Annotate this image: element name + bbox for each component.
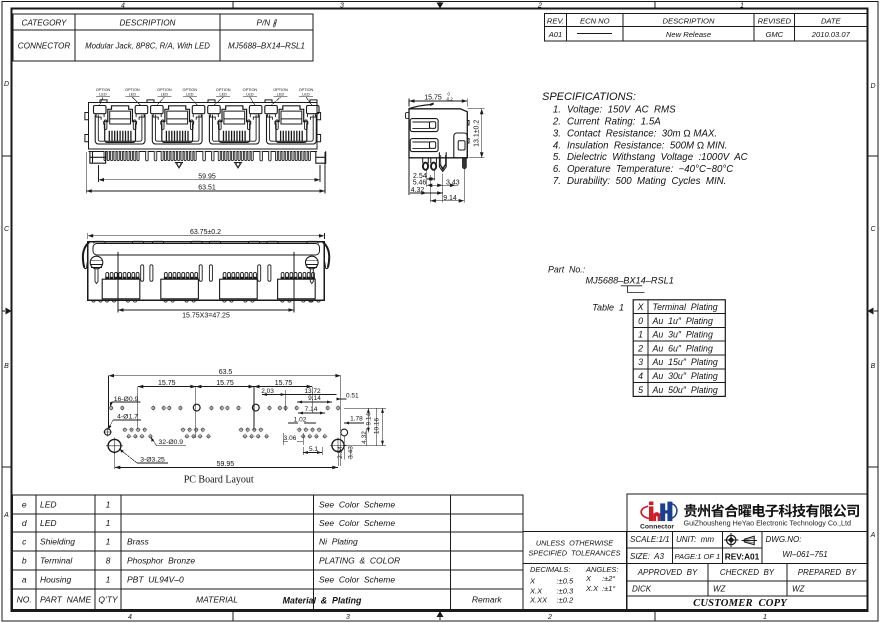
svg-text:1.02: 1.02 — [294, 417, 307, 424]
svg-text:1: 1 — [763, 614, 767, 621]
svg-text:OPTION: OPTION — [96, 88, 111, 92]
svg-text:2.: 2. — [552, 117, 561, 128]
svg-text:9.14: 9.14 — [308, 395, 321, 402]
svg-text:LED: LED — [277, 93, 285, 97]
svg-text:7.14: 7.14 — [305, 406, 318, 413]
svg-text:D: D — [870, 83, 875, 90]
svg-text:1: 1 — [638, 330, 643, 340]
svg-text::±0.2: :±0.2 — [557, 596, 574, 605]
svg-text:OPTION: OPTION — [125, 88, 140, 92]
svg-text:ECN NO: ECN NO — [580, 16, 610, 25]
svg-text:LED: LED — [161, 93, 169, 97]
svg-text:Durability: 500 Mating Cycl: Durability: 500 Mating Cycles MIN. — [567, 176, 726, 187]
svg-text:LED: LED — [99, 93, 107, 97]
svg-text:4.: 4. — [553, 140, 561, 151]
svg-text:PART NAME: PART NAME — [40, 594, 91, 604]
svg-text:Terminal: Terminal — [40, 556, 73, 566]
svg-text:5.1: 5.1 — [309, 446, 318, 453]
svg-text:X.XX: X.XX — [529, 596, 548, 605]
svg-text:D: D — [4, 81, 9, 88]
svg-text:OPTION: OPTION — [299, 88, 314, 92]
svg-text:Ni Plating: Ni Plating — [319, 537, 358, 547]
svg-text:WI–061–751: WI–061–751 — [782, 550, 827, 559]
svg-text:LED: LED — [220, 93, 228, 97]
svg-text:63.5: 63.5 — [219, 369, 233, 376]
svg-text:SPECIFICATIONS:: SPECIFICATIONS: — [542, 91, 636, 103]
svg-text:WZ: WZ — [792, 585, 806, 594]
svg-text:Terminal Plating: Terminal Plating — [653, 302, 718, 312]
svg-text:PLATING & COLOR: PLATING & COLOR — [319, 556, 400, 566]
svg-text:LED: LED — [246, 93, 254, 97]
svg-text:1.78: 1.78 — [350, 416, 363, 423]
svg-text:LED: LED — [302, 93, 310, 97]
svg-text:OPTION: OPTION — [243, 88, 258, 92]
svg-text:Au 3u″ Plating: Au 3u″ Plating — [652, 330, 713, 340]
svg-text:Remark: Remark — [472, 594, 503, 604]
svg-text:4.32: 4.32 — [411, 187, 425, 194]
svg-text:59.95: 59.95 — [217, 461, 235, 468]
svg-text:SPECIFIED TOLERANCES: SPECIFIED TOLERANCES — [529, 548, 621, 557]
svg-text:13.1±0.2: 13.1±0.2 — [474, 120, 481, 147]
svg-text:1: 1 — [106, 500, 111, 510]
svg-text:0: 0 — [638, 316, 643, 326]
svg-text:d: d — [22, 518, 27, 528]
svg-text:Table 1: Table 1 — [592, 302, 624, 312]
svg-text::±2°: :±2° — [602, 574, 615, 583]
svg-text:A: A — [870, 532, 876, 539]
svg-text:9.14: 9.14 — [443, 195, 457, 202]
svg-text:3-Ø3.25: 3-Ø3.25 — [140, 457, 165, 464]
svg-text:15.75: 15.75 — [216, 380, 234, 387]
svg-text:6.: 6. — [553, 164, 561, 175]
svg-text:Current Rating: 1.5A: Current Rating: 1.5A — [567, 117, 661, 128]
svg-text:PAGE:1 OF 1: PAGE:1 OF 1 — [675, 552, 721, 561]
svg-text:MJ5688–BX14–RSL1: MJ5688–BX14–RSL1 — [586, 275, 674, 285]
svg-text:LED: LED — [129, 93, 137, 97]
svg-text:CATEGORY: CATEGORY — [21, 19, 67, 28]
svg-text:3: 3 — [340, 2, 344, 9]
svg-text:OPTION: OPTION — [183, 88, 198, 92]
svg-text:3.43: 3.43 — [347, 446, 354, 459]
svg-text:1: 1 — [106, 575, 111, 585]
svg-text:59.95: 59.95 — [198, 173, 216, 180]
svg-text:A01: A01 — [548, 30, 563, 39]
svg-text:4.32: 4.32 — [361, 431, 368, 444]
svg-text:OPTION: OPTION — [157, 88, 172, 92]
svg-text:CONNECTOR: CONNECTOR — [18, 42, 71, 51]
svg-text:63.75±0.2: 63.75±0.2 — [190, 229, 221, 236]
svg-text:See Color Scheme: See Color Scheme — [319, 518, 395, 528]
svg-text:32-Ø0.9: 32-Ø0.9 — [159, 439, 184, 446]
svg-text:a: a — [22, 575, 27, 585]
svg-text:DESCRIPTION: DESCRIPTION — [120, 19, 176, 28]
svg-text:DESCRIPTION: DESCRIPTION — [663, 16, 715, 25]
svg-text:4: 4 — [121, 2, 125, 9]
svg-text:Operature Temperature: −40°C: Operature Temperature: −40°C~80°C — [567, 164, 734, 175]
svg-text:3.: 3. — [553, 128, 561, 139]
svg-text:5: 5 — [638, 385, 643, 395]
svg-text:1.: 1. — [553, 105, 561, 116]
svg-text:4: 4 — [638, 371, 643, 381]
svg-text:Brass: Brass — [127, 537, 149, 547]
svg-text:2010.03.07: 2010.03.07 — [811, 30, 851, 39]
svg-text:Dielectric Withstang Voltage: Dielectric Withstang Voltage :1000V AC — [567, 152, 749, 163]
svg-text:See Color Scheme: See Color Scheme — [319, 500, 395, 510]
svg-text:10.16: 10.16 — [374, 417, 381, 434]
svg-text:15.75: 15.75 — [158, 380, 176, 387]
svg-text:-0.2: -0.2 — [446, 97, 454, 102]
svg-text::±1°: :±1° — [602, 584, 615, 593]
svg-text:X: X — [529, 577, 536, 586]
svg-text:2: 2 — [537, 2, 542, 9]
svg-text:3: 3 — [346, 614, 350, 621]
svg-text:Q’TY: Q’TY — [98, 594, 119, 604]
svg-text:GuiZhousheng HeYao Electronic: GuiZhousheng HeYao Electronic Technology… — [684, 519, 852, 528]
svg-text:SIZE: A3: SIZE: A3 — [630, 552, 664, 561]
svg-text:GMC: GMC — [765, 30, 783, 39]
svg-text:REVISED: REVISED — [758, 16, 792, 25]
svg-text:Voltage: 150V AC RMS: Voltage: 150V AC RMS — [567, 105, 676, 116]
svg-text:Material & Plating: Material & Plating — [283, 595, 362, 605]
svg-text:e: e — [22, 500, 27, 510]
svg-text:7.: 7. — [553, 176, 561, 187]
svg-text:See Color Scheme: See Color Scheme — [319, 575, 395, 585]
svg-text:5.46: 5.46 — [413, 180, 427, 187]
svg-text:DECIMALS:: DECIMALS: — [530, 565, 570, 574]
svg-text:X.X: X.X — [585, 584, 599, 593]
svg-text:13.72: 13.72 — [304, 388, 321, 395]
svg-text:OPTION: OPTION — [273, 88, 288, 92]
svg-text:APPROVED BY: APPROVED BY — [637, 568, 698, 577]
svg-text:2.03: 2.03 — [261, 388, 274, 395]
svg-text:63.51: 63.51 — [198, 185, 216, 192]
svg-text:15.75: 15.75 — [424, 94, 442, 101]
svg-text:4-Ø1.7: 4-Ø1.7 — [117, 414, 138, 421]
svg-text:b: b — [22, 556, 27, 566]
svg-text:WZ: WZ — [713, 585, 727, 594]
svg-text:Au 15u″ Plating: Au 15u″ Plating — [652, 357, 718, 367]
svg-text:Connector: Connector — [640, 524, 674, 531]
svg-text:B: B — [871, 363, 876, 370]
svg-text:9.14: 9.14 — [365, 412, 372, 425]
svg-text:15.75X3=47.25: 15.75X3=47.25 — [182, 312, 230, 319]
svg-text:0.51: 0.51 — [346, 393, 359, 400]
svg-text:X: X — [585, 574, 592, 583]
svg-text:Au 1u″ Plating: Au 1u″ Plating — [652, 316, 713, 326]
svg-text:CHECKED BY: CHECKED BY — [720, 568, 775, 577]
svg-text:15.75: 15.75 — [275, 380, 293, 387]
svg-text:A: A — [3, 512, 9, 519]
svg-text:Modular Jack, 8P8C, R/A, With: Modular Jack, 8P8C, R/A, With LED — [85, 42, 210, 51]
svg-text:DWG.NO:: DWG.NO: — [766, 535, 802, 544]
svg-text:2: 2 — [547, 614, 552, 621]
svg-text:UNLESS OTHERWISE: UNLESS OTHERWISE — [536, 539, 613, 548]
svg-text::±0.3: :±0.3 — [557, 587, 574, 596]
svg-text:2: 2 — [637, 343, 643, 353]
svg-text:P/N ∦: P/N ∦ — [256, 19, 277, 28]
svg-text:LED: LED — [40, 518, 57, 528]
svg-text:Insulation Resistance: 500M: Insulation Resistance: 500M Ω MIN. — [567, 140, 727, 151]
svg-text:1: 1 — [106, 518, 111, 528]
svg-text:Part No.:: Part No.: — [548, 265, 586, 275]
svg-text:UNIT: mm: UNIT: mm — [676, 535, 714, 544]
svg-text:New Release: New Release — [666, 30, 711, 39]
svg-text:MATERIAL: MATERIAL — [196, 594, 238, 604]
svg-text:3: 3 — [638, 357, 643, 367]
svg-text:ANGLES:: ANGLES: — [585, 565, 619, 574]
svg-text:Au 30u″ Plating: Au 30u″ Plating — [652, 371, 718, 381]
svg-text::±0.5: :±0.5 — [557, 577, 574, 586]
svg-text:8: 8 — [106, 556, 111, 566]
svg-text:DATE: DATE — [821, 16, 842, 25]
svg-text:X: X — [637, 302, 645, 312]
svg-text:DICK: DICK — [632, 585, 652, 594]
svg-text:CUSTOMER COPY: CUSTOMER COPY — [693, 598, 788, 609]
svg-text:PREPARED BY: PREPARED BY — [798, 568, 857, 577]
svg-text:c: c — [22, 537, 27, 547]
svg-text:X.X: X.X — [529, 587, 543, 596]
svg-text:NO.: NO. — [17, 594, 32, 604]
svg-text:1: 1 — [740, 2, 744, 9]
svg-text:5.: 5. — [553, 152, 561, 163]
svg-text:REV:A01: REV:A01 — [725, 552, 760, 562]
svg-text:SCALE:1/1: SCALE:1/1 — [630, 535, 670, 544]
svg-text:PBT UL94V–0: PBT UL94V–0 — [127, 575, 184, 585]
svg-text:MJ5688–BX14–RSL1: MJ5688–BX14–RSL1 — [228, 42, 305, 51]
svg-text:1: 1 — [106, 537, 111, 547]
svg-text:PC Board Layout: PC Board Layout — [184, 474, 254, 485]
svg-text:Phosphor Bronze: Phosphor Bronze — [127, 556, 195, 566]
svg-text:LED: LED — [186, 93, 194, 97]
svg-text:REV.: REV. — [547, 16, 564, 25]
svg-text:Housing: Housing — [40, 575, 71, 585]
svg-text:OPTION: OPTION — [216, 88, 231, 92]
svg-text:LED: LED — [40, 500, 57, 510]
svg-text:B: B — [4, 363, 9, 370]
svg-text:4: 4 — [128, 614, 132, 621]
svg-text:Au 50u″ Plating: Au 50u″ Plating — [652, 385, 718, 395]
svg-text:Contact Resistance: 30m Ω MA: Contact Resistance: 30m Ω MAX. — [567, 128, 717, 139]
svg-text:Au 6u″ Plating: Au 6u″ Plating — [652, 343, 713, 353]
svg-text:Shielding: Shielding — [40, 537, 75, 547]
